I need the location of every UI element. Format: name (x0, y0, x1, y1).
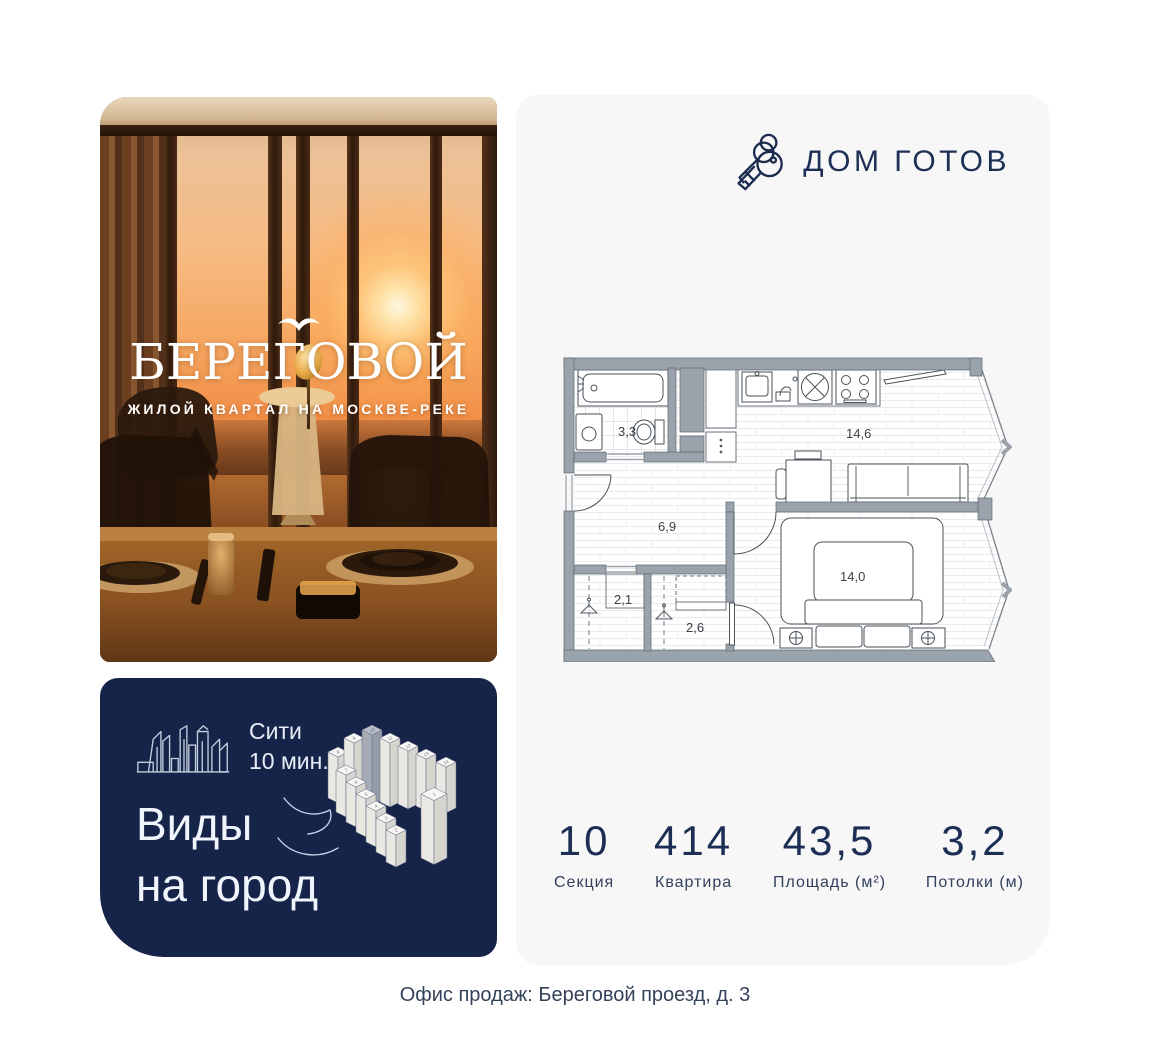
stat-ceiling-value: 3,2 (926, 817, 1024, 865)
stat-ceiling-label: Потолки (м) (926, 874, 1024, 892)
tower-block (421, 794, 434, 865)
apartment-stats: 10 Секция 414 Квартира 43,5 Площадь (м²)… (554, 817, 1024, 892)
brand-logo: БЕРЕГОВОЙ ЖИЛОЙ КВАРТАЛ НА МОСКВЕ-РЕКЕ (100, 315, 497, 417)
status-title: ДОМ ГОТОВ (803, 145, 1010, 179)
stat-area-label: Площадь (м²) (773, 874, 886, 892)
area-wardrobe-large: 2,6 (686, 620, 704, 635)
tower-block (398, 746, 408, 809)
hero-photo-card: БЕРЕГОВОЙ ЖИЛОЙ КВАРТАЛ НА МОСКВЕ-РЕКЕ (100, 97, 497, 662)
stat-ceiling: 3,2 Потолки (м) (926, 817, 1024, 892)
apartment-plan-card: ДОМ ГОТОВ (516, 95, 1050, 965)
stat-area-value: 43,5 (773, 817, 886, 865)
tower-block (396, 830, 406, 867)
floor-plan: 3,3 14,6 6,9 2,1 2,6 14,0 (558, 352, 1012, 662)
area-wardrobe-small: 2,1 (614, 592, 632, 607)
brand-subtitle: ЖИЛОЙ КВАРТАЛ НА МОСКВЕ-РЕКЕ (100, 401, 497, 417)
promo-headline-line2: на город (136, 855, 318, 916)
stat-apartment-label: Квартира (654, 874, 733, 892)
page: БЕРЕГОВОЙ ЖИЛОЙ КВАРТАЛ НА МОСКВЕ-РЕКЕ (0, 0, 1150, 1040)
stat-apartment-value: 414 (654, 817, 733, 865)
area-bathroom: 3,3 (618, 424, 636, 439)
sales-office-address: Офис продаж: Береговой проезд, д. 3 (0, 984, 1150, 1007)
city-distance-badge: Сити 10 мин. (134, 714, 329, 778)
city-skyline-icon (134, 714, 234, 778)
area-bedroom: 14,0 (840, 569, 865, 584)
stat-section-value: 10 (554, 817, 614, 865)
keys-icon (725, 129, 787, 195)
tower-block (434, 794, 447, 865)
stat-section: 10 Секция (554, 817, 614, 892)
promo-headline: Виды на город (136, 794, 318, 916)
stat-area: 43,5 Площадь (м²) (773, 817, 886, 892)
status-row: ДОМ ГОТОВ (725, 129, 1010, 195)
promo-card: Сити 10 мин. 8910111213147654321 Виды на… (100, 678, 497, 957)
tower-block (446, 762, 456, 813)
seagull-icon (276, 315, 322, 333)
area-kitchen-living: 14,6 (846, 426, 871, 441)
brand-title: БЕРЕГОВОЙ (100, 333, 497, 391)
stat-section-label: Секция (554, 874, 614, 892)
stat-apartment: 414 Квартира (654, 817, 733, 892)
area-hallway: 6,9 (658, 519, 676, 534)
promo-headline-line1: Виды (136, 794, 318, 855)
